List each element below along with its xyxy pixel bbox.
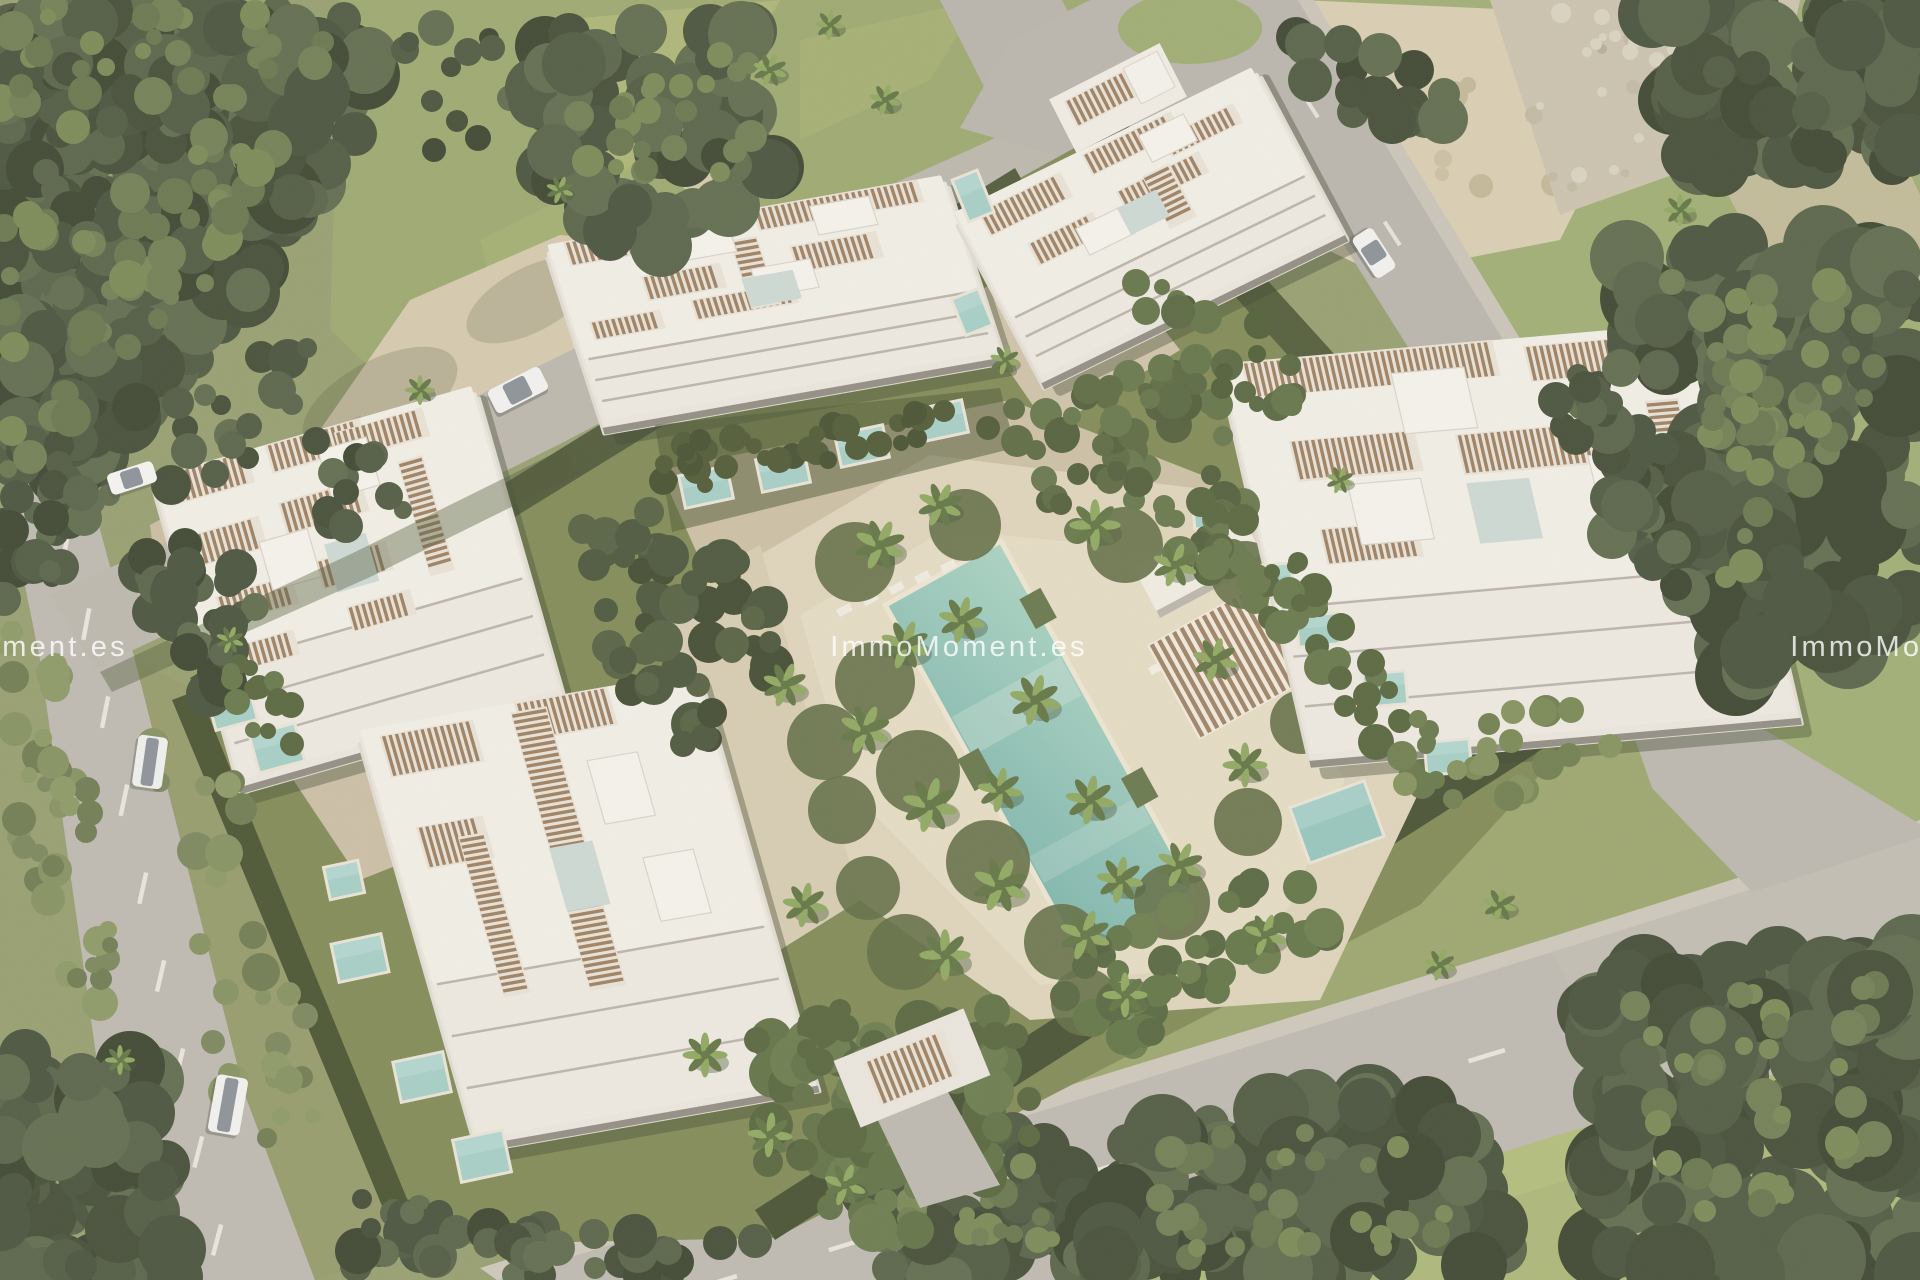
svg-text:ImmoMoment.es: ImmoMoment.es xyxy=(0,631,128,663)
svg-text:ImmoMoment.es: ImmoMoment.es xyxy=(1790,631,1920,663)
svg-text:ImmoMoment.es: ImmoMoment.es xyxy=(830,631,1088,663)
